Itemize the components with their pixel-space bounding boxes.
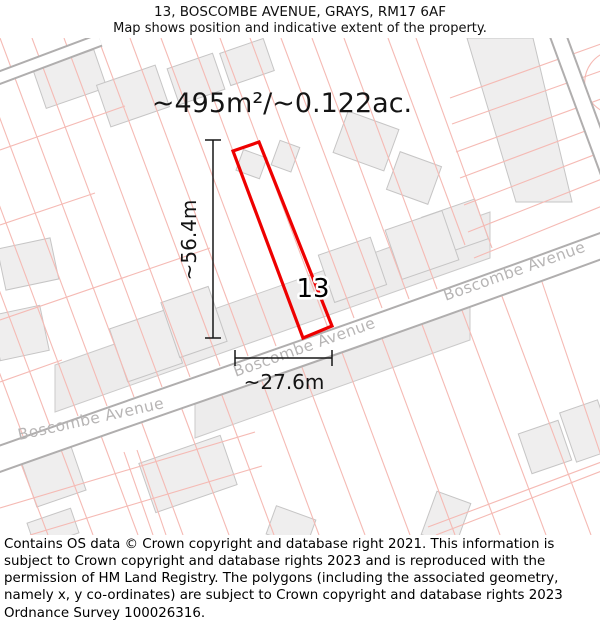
vertical-dimension-label: ~56.4m	[177, 200, 201, 281]
property-map: Boscombe Avenue Boscombe Avenue Boscombe…	[0, 38, 600, 535]
page-subtitle: Map shows position and indicative extent…	[0, 21, 600, 37]
plot-number-label: 13	[296, 274, 329, 304]
copyright-notice: Contains OS data © Crown copyright and d…	[4, 536, 597, 622]
map-container: Boscombe Avenue Boscombe Avenue Boscombe…	[0, 38, 600, 535]
header: 13, BOSCOMBE AVENUE, GRAYS, RM17 6AF Map…	[0, 0, 600, 40]
page-title: 13, BOSCOMBE AVENUE, GRAYS, RM17 6AF	[0, 5, 600, 21]
horizontal-dimension-label: ~27.6m	[244, 370, 325, 394]
area-label: ~495m²/~0.122ac.	[152, 88, 412, 119]
